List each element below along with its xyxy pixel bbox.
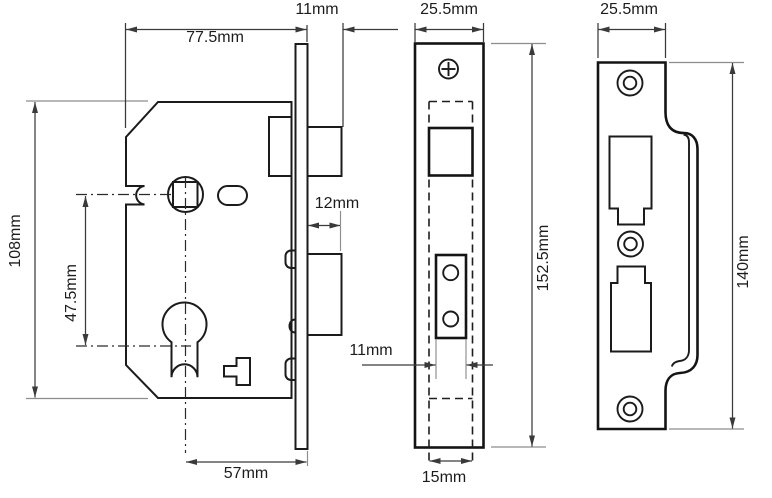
label-inner-width: 15mm xyxy=(422,470,466,486)
fixing-slot-oval xyxy=(218,186,247,205)
strike-screw-hole-top-inner xyxy=(624,77,637,90)
lock-case-outline xyxy=(126,102,292,398)
label-faceplate-height: 152.5mm xyxy=(536,225,552,292)
latch-bolt-front xyxy=(429,128,473,176)
strike-screw-hole-middle-inner xyxy=(624,238,637,251)
deadbolt-keep-aperture xyxy=(611,267,651,352)
label-backset: 57mm xyxy=(224,466,268,482)
label-latch-projection: 11mm xyxy=(295,2,338,18)
strike-plate-view xyxy=(598,23,744,429)
drawing-layer xyxy=(0,0,772,498)
label-case-width: 77.5mm xyxy=(186,30,244,46)
label-strike-width: 25.5mm xyxy=(600,2,658,18)
label-centres: 47.5mm xyxy=(64,264,80,322)
label-strike-height: 140mm xyxy=(736,235,752,288)
euro-cylinder-cutout xyxy=(163,302,207,377)
deadbolt-projecting xyxy=(308,254,342,335)
strike-screw-hole-top-outer xyxy=(618,71,643,96)
deadbolt-pin-bottom xyxy=(443,312,458,327)
latch-bolt-inner xyxy=(269,117,292,176)
label-deadbolt-projection: 12mm xyxy=(315,196,359,212)
snib-stop-cutout xyxy=(224,358,250,385)
strike-plate-outline xyxy=(598,63,698,430)
label-faceplate-width: 25.5mm xyxy=(420,2,478,18)
latch-bolt-projecting xyxy=(308,127,342,176)
latch-keep-aperture xyxy=(610,137,652,225)
mortice-lock-diagram: 77.5mm 11mm 12mm 108mm 47.5mm 57mm 25.5m… xyxy=(0,0,772,498)
deadbolt-pin-top xyxy=(443,265,458,280)
strike-screw-hole-bottom-inner xyxy=(624,403,637,416)
strike-lip-fold-line xyxy=(672,135,689,367)
strike-screw-hole-bottom-outer xyxy=(618,397,643,422)
faceplate-front-view xyxy=(362,23,546,461)
label-bolt-width: 11mm xyxy=(349,343,392,359)
forend-plate-side xyxy=(296,44,308,449)
lock-case-side-view xyxy=(26,23,398,466)
strike-screw-hole-middle-outer xyxy=(618,232,643,257)
label-case-height: 108mm xyxy=(8,214,24,267)
